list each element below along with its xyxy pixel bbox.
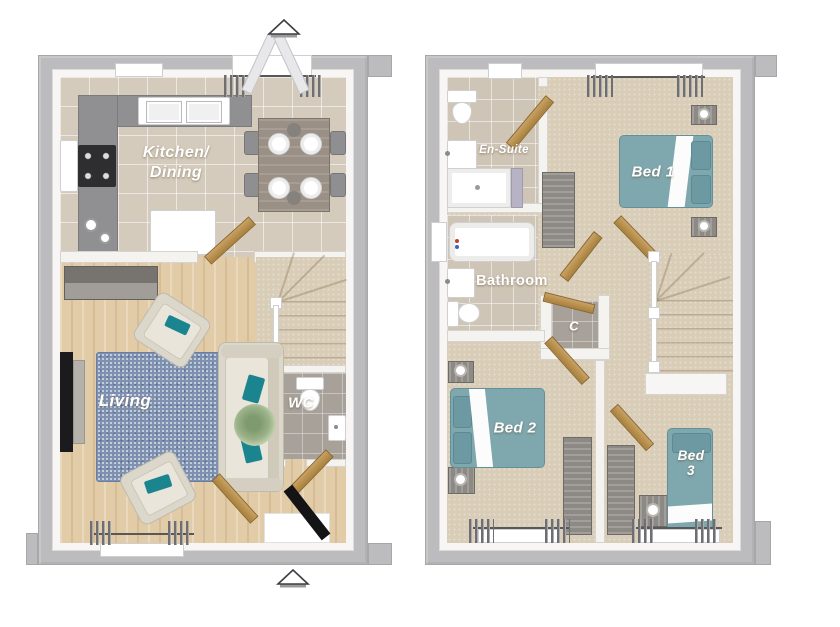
wall-tab — [755, 55, 777, 77]
placemat-icon — [287, 123, 301, 137]
plate-icon — [268, 133, 290, 155]
tv-icon — [60, 352, 73, 452]
curtains-icon — [168, 521, 192, 545]
bed3-label-line2: 3 — [687, 463, 695, 478]
dining-chair — [330, 173, 346, 197]
curtains-icon — [677, 75, 703, 97]
wardrobe — [542, 172, 575, 248]
curtains-icon — [587, 75, 613, 97]
wall-tab — [755, 521, 771, 565]
dishwasher — [150, 210, 216, 255]
kitchen-window — [115, 63, 163, 77]
lamp-icon — [454, 473, 467, 486]
kitchen-label-line2: Dining — [150, 164, 202, 181]
hob-icon — [78, 145, 116, 187]
tv-unit — [73, 360, 85, 444]
plate-icon — [300, 133, 322, 155]
ground-floor-plan: Living Kitchen/Dining WC — [38, 55, 368, 565]
newel-post — [648, 361, 660, 373]
entrance-arrow-icon — [266, 18, 302, 39]
room-label-bathroom: Bathroom — [476, 273, 548, 289]
living-window — [100, 543, 184, 557]
plant-icon — [234, 404, 276, 446]
lamp-icon — [646, 503, 660, 517]
arrow-triangle — [269, 20, 299, 34]
tap-icon — [334, 425, 338, 429]
bathroom-window — [431, 222, 447, 262]
room-label-bed3: Bed3 — [678, 448, 705, 478]
staircase — [648, 255, 733, 372]
pillow-icon — [691, 175, 711, 204]
stair-treads — [278, 301, 346, 373]
stair-half-wall — [645, 373, 727, 395]
partition-wall — [595, 360, 605, 543]
oven-unit — [60, 140, 78, 192]
tap-icon — [445, 279, 450, 284]
pillow-icon — [453, 432, 472, 464]
sideboard — [64, 266, 158, 300]
placemat-icon — [287, 191, 301, 205]
en-suite-window — [488, 63, 522, 79]
kitchen-label-line1: Kitchen/ — [143, 144, 209, 161]
pillow-icon — [691, 141, 711, 170]
lamp-icon — [454, 364, 467, 377]
dining-chair — [330, 131, 346, 155]
partition-wall — [538, 77, 548, 87]
wardrobe — [607, 445, 635, 535]
entrance-arrow-icon — [275, 568, 311, 589]
sink-basin — [186, 101, 222, 123]
kitchen-appliance — [99, 232, 111, 244]
wall-tab — [26, 533, 38, 565]
sofa-arm — [221, 345, 283, 358]
curtains-icon — [545, 519, 570, 543]
duvet-fold — [469, 389, 493, 467]
room-label-living: Living — [99, 391, 151, 411]
wall-tab — [368, 55, 392, 77]
stair-treads — [656, 300, 733, 372]
bed3-label-line1: Bed — [678, 448, 705, 463]
bath-icon — [449, 222, 535, 262]
basin-icon — [447, 140, 477, 170]
curtains-icon — [695, 519, 719, 543]
toilet-icon — [458, 303, 480, 323]
room-label-cupboard: C — [569, 319, 579, 334]
room-label-bed1: Bed 1 — [632, 164, 675, 181]
arrow-triangle — [278, 570, 308, 584]
floorplan-scene: Living Kitchen/Dining WC — [0, 0, 840, 627]
drain-icon — [475, 185, 480, 190]
curtains-icon — [469, 519, 494, 543]
newel-post — [648, 307, 660, 319]
curtains-icon — [90, 521, 114, 545]
lamp-icon — [698, 108, 710, 120]
shower-screen — [511, 168, 523, 208]
wall-tab — [368, 543, 392, 565]
partition-wall — [274, 365, 346, 373]
pillow-icon — [453, 396, 472, 428]
tap-icon — [445, 151, 450, 156]
room-label-wc: WC — [288, 395, 314, 412]
sink-basin — [146, 101, 182, 123]
basin-icon — [447, 268, 475, 298]
first-floor-plan: En-Suite Bed 1 Bathroom — [425, 55, 755, 565]
curtains-icon — [632, 519, 656, 543]
partition-wall — [447, 330, 545, 342]
tap-cold-icon — [455, 245, 459, 249]
kitchen-appliance — [84, 218, 98, 232]
plate-icon — [300, 177, 322, 199]
lamp-icon — [698, 220, 710, 232]
tap-hot-icon — [455, 239, 459, 243]
room-label-en-suite: En-Suite — [479, 144, 529, 156]
room-label-bed2: Bed 2 — [494, 420, 537, 437]
partition-wall — [60, 251, 198, 263]
room-label-kitchen-dining: Kitchen/Dining — [143, 143, 209, 183]
